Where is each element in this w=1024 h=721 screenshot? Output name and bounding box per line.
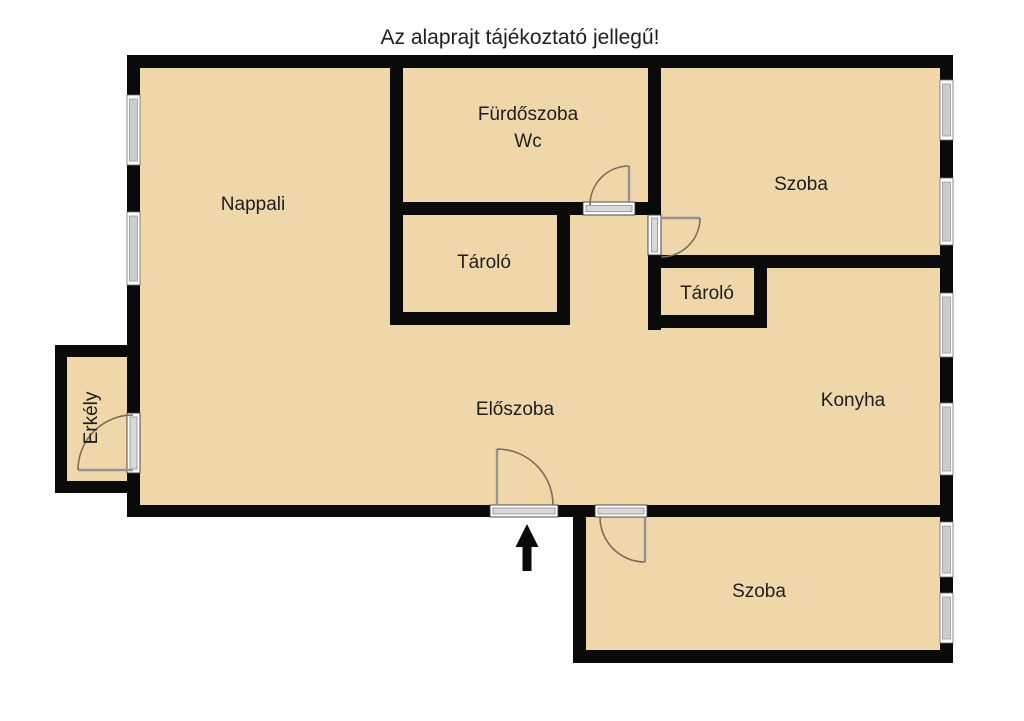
wall-bottom-segment [127,505,490,517]
room-label-erkely: Erkély [81,391,102,444]
wall-szoba-bottom-left [573,505,586,663]
door-frame-erkely [127,413,140,473]
door-frame-entrance [490,505,558,517]
wall-right-segment [940,577,953,593]
room-label-furdoszoba-line1: Fürdőszoba [478,104,579,125]
wall-top [127,55,953,68]
wall-szoba-konyha [648,255,953,268]
wall-tarolo2-bottom [648,315,767,328]
wall-tarolo-right [557,202,570,325]
wall-erkely-bottom [55,481,140,493]
wall-szoba-left [648,61,661,217]
room-main-area [133,61,947,511]
room-label-szoba-top: Szoba [774,174,828,195]
door-frame-szoba-bottom [595,505,647,517]
window [940,80,953,140]
window [940,593,953,643]
wall-right-segment [940,245,953,293]
wall-left-segment [127,165,140,212]
room-label-szoba-bottom: Szoba [732,581,786,602]
room-label-tarolo-top: Tároló [457,252,511,273]
wall-erkely-top [55,345,140,357]
wall-erkely-left [55,345,67,493]
window [940,178,953,245]
room-label-furdoszoba-line2: Wc [514,131,541,152]
wall-bottom-segment [647,505,953,517]
room-label-nappali: Nappali [221,194,285,215]
room-label-konyha: Konyha [821,390,886,411]
wall-szoba-bottom-bottom [573,650,953,663]
wall-left-segment [127,55,140,95]
wall-right-segment [940,140,953,178]
window [127,95,140,165]
window [940,522,953,577]
floorplan-page: Az alaprajt tájékoztató jellegű! Nappali… [0,0,1024,721]
window [940,293,953,357]
window [940,403,953,475]
entrance-arrow-icon [516,524,539,571]
floorplan-drawing: Az alaprajt tájékoztató jellegű! Nappali… [0,0,1024,721]
wall-tarolo-bottom [390,312,570,325]
room-label-eloszoba: Előszoba [476,399,555,420]
window [127,212,140,285]
wall-nappali-furdoszoba [390,61,403,325]
floorplan-title: Az alaprajt tájékoztató jellegű! [381,26,660,49]
wall-right-segment [940,55,953,80]
room-label-tarolo-right: Tároló [680,283,734,304]
wall-furdoszoba-bottom [390,202,583,215]
wall-right-segment [940,357,953,403]
door-frame-szoba-top [648,215,661,255]
